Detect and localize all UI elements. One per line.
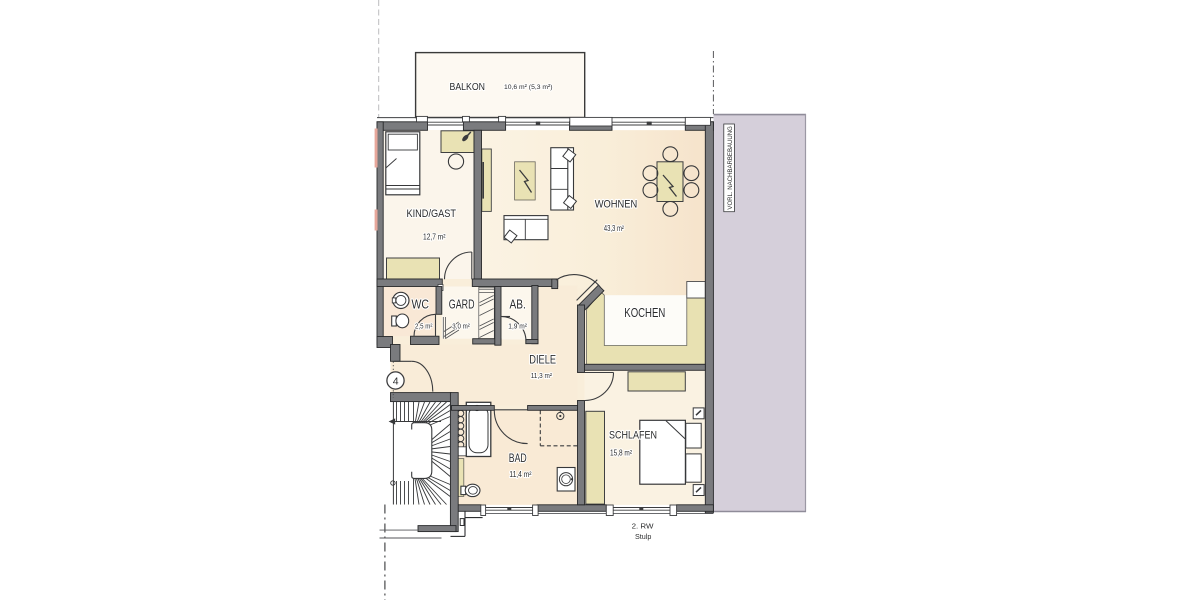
svg-text:4: 4 (393, 375, 399, 387)
svg-text:GARD: GARD (449, 298, 475, 312)
svg-text:KOCHEN: KOCHEN (624, 306, 665, 320)
svg-text:BAD: BAD (509, 451, 527, 465)
svg-text:WC: WC (412, 297, 430, 312)
svg-text:11,3 m²: 11,3 m² (531, 371, 553, 380)
svg-text:2. RW: 2. RW (632, 522, 654, 531)
svg-text:DIELE: DIELE (529, 352, 556, 366)
svg-text:43,3 m²: 43,3 m² (604, 224, 624, 233)
svg-text:10,6 m² (5,3 m²): 10,6 m² (5,3 m²) (504, 84, 553, 91)
svg-text:1,9 m²: 1,9 m² (508, 321, 527, 330)
svg-text:KIND/GAST: KIND/GAST (407, 208, 457, 220)
svg-text:3,0 m²: 3,0 m² (452, 321, 470, 330)
svg-text:12,7 m²: 12,7 m² (423, 233, 446, 242)
svg-text:11,4 m²: 11,4 m² (509, 470, 531, 479)
svg-text:2,5 m²: 2,5 m² (415, 321, 433, 330)
svg-text:15,8 m²: 15,8 m² (610, 449, 632, 458)
svg-text:VORL. NACHBARBEBAUUNG: VORL. NACHBARBEBAUUNG (727, 126, 734, 210)
svg-text:SCHLAFEN: SCHLAFEN (609, 430, 657, 442)
svg-text:AB.: AB. (510, 297, 526, 312)
svg-text:WOHNEN: WOHNEN (595, 199, 638, 211)
svg-text:Stulp: Stulp (635, 532, 651, 541)
svg-text:BALKON: BALKON (450, 82, 486, 93)
